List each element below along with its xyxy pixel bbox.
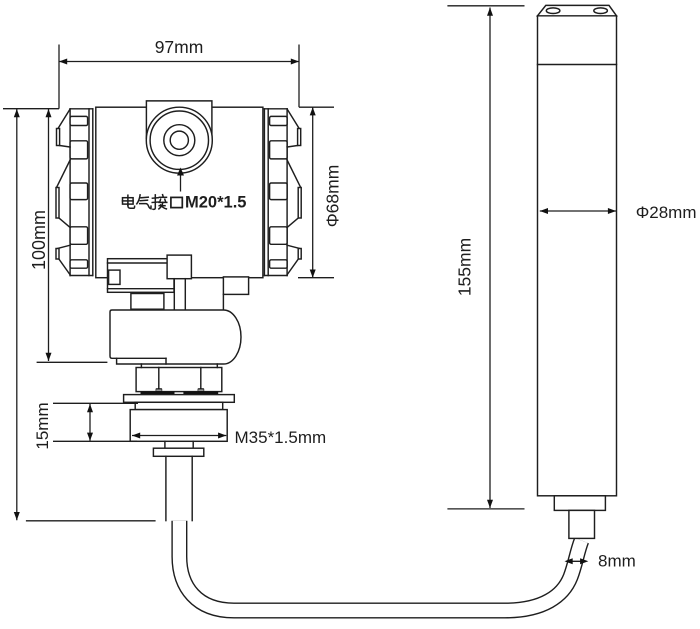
svg-text:97mm: 97mm [155,37,204,57]
svg-text:M35*1.5mm: M35*1.5mm [235,428,327,447]
svg-text:8mm: 8mm [598,552,636,571]
svg-text:M20*1.5: M20*1.5 [185,194,246,212]
svg-text:100mm: 100mm [29,210,49,270]
svg-text:Φ68mm: Φ68mm [323,165,343,228]
svg-text:Φ28mm: Φ28mm [636,203,697,222]
svg-text:15mm: 15mm [33,402,52,449]
svg-text:155mm: 155mm [455,238,475,296]
